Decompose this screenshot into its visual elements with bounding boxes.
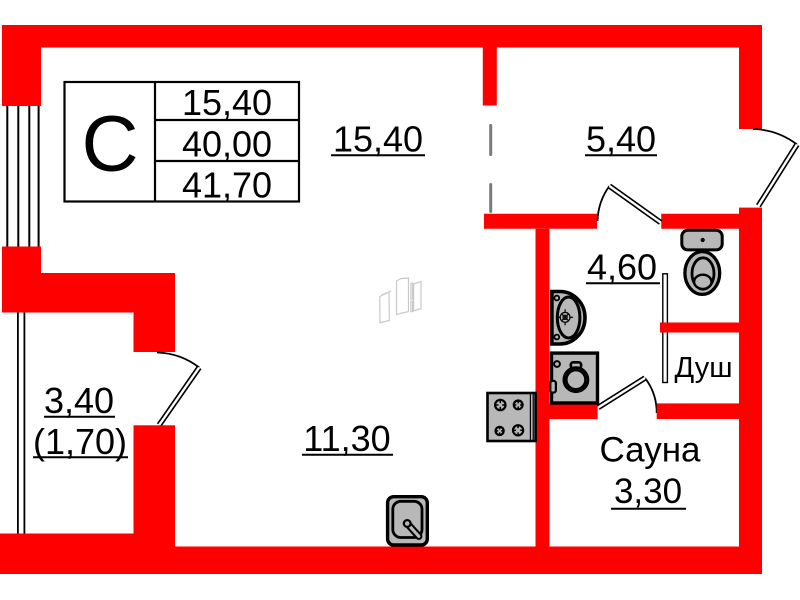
- svg-text:41,70: 41,70: [182, 165, 272, 206]
- svg-text:40,00: 40,00: [182, 124, 272, 165]
- svg-text:11,30: 11,30: [303, 418, 390, 459]
- svg-text:15,40: 15,40: [333, 119, 423, 160]
- svg-text:Сауна: Сауна: [599, 431, 701, 470]
- svg-text:(1,70): (1,70): [33, 421, 127, 462]
- svg-text:Душ: Душ: [674, 352, 732, 384]
- svg-text:4,60: 4,60: [587, 247, 657, 288]
- svg-text:15,40: 15,40: [182, 82, 272, 123]
- svg-text:3,40: 3,40: [44, 380, 114, 421]
- svg-text:С: С: [81, 99, 138, 188]
- svg-text:3,30: 3,30: [614, 472, 682, 511]
- svg-text:5,40: 5,40: [586, 119, 656, 160]
